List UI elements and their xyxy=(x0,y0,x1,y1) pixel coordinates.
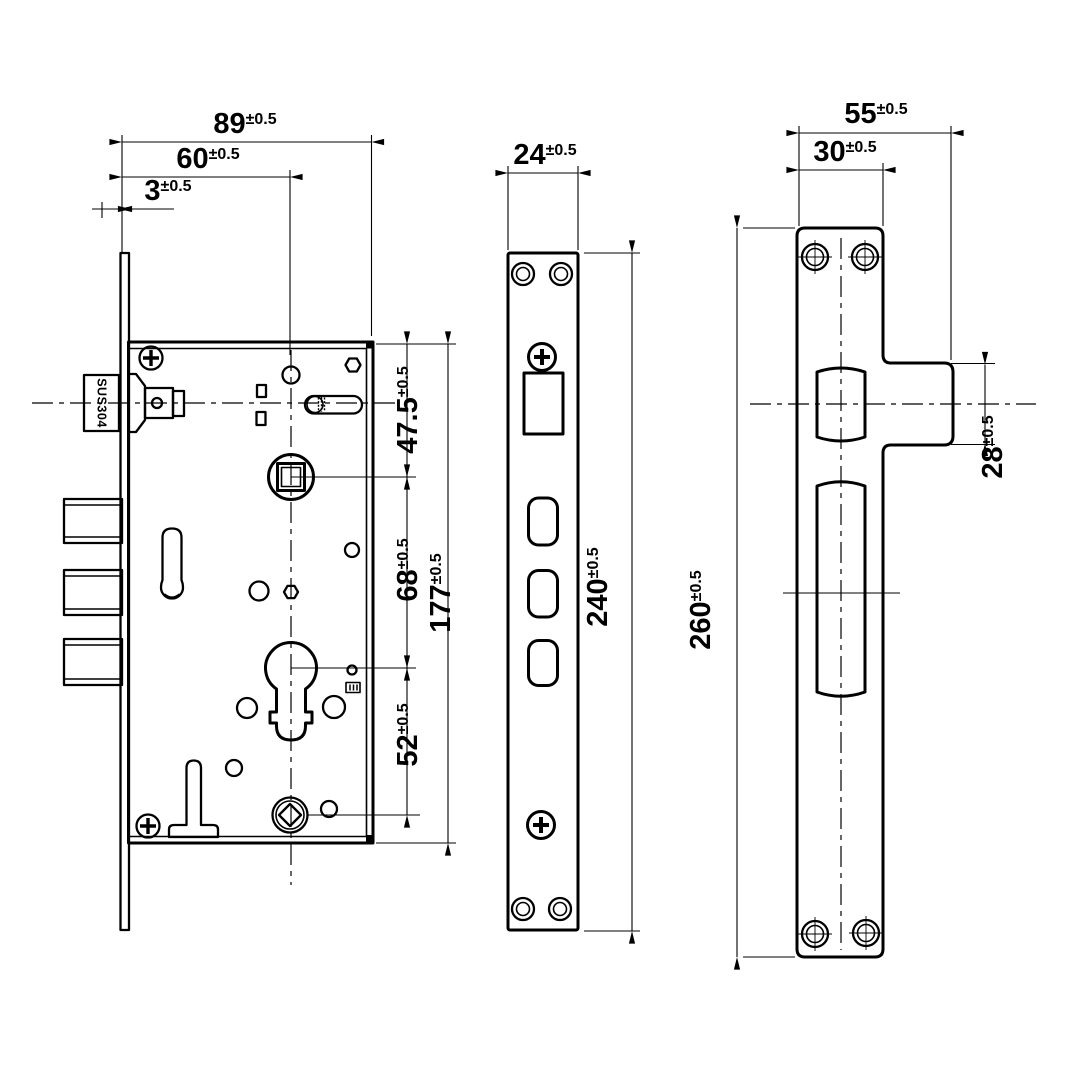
deadbolt-opening-3 xyxy=(529,641,558,686)
stop-slot xyxy=(305,396,362,414)
hole-inner xyxy=(554,903,567,916)
dim-3-label: 3±0.5 xyxy=(144,175,191,207)
hole-outer xyxy=(512,898,534,920)
dim-24-label: 24±0.5 xyxy=(513,139,576,171)
stop-slot-outline xyxy=(305,396,362,414)
lock-body-inner-line xyxy=(129,349,367,837)
dim-55-label: 55±0.5 xyxy=(844,98,907,130)
dim-52-label: 52±0.5 xyxy=(392,703,424,766)
deadbolt-3 xyxy=(64,639,122,685)
fixing-screw-top xyxy=(140,347,163,370)
cover-plate-view xyxy=(783,228,953,957)
latch-opening xyxy=(524,373,563,434)
square-hole-lower xyxy=(257,412,266,425)
faceplate-screw-top xyxy=(529,344,556,371)
deadbolt-opening-1 xyxy=(529,498,558,545)
round-hole-center xyxy=(250,582,269,601)
guide-pin-outline xyxy=(161,529,183,599)
dimension-labels: 89±0.5 60±0.5 3±0.5 47.5±0.5 68±0.5 52±0… xyxy=(95,98,1010,767)
hole-inner xyxy=(555,268,568,281)
crosshair-icon xyxy=(848,240,882,274)
small-hole-right xyxy=(345,543,359,557)
deadbolt-1 xyxy=(64,499,122,543)
hole-right-of-cylinder xyxy=(323,696,345,718)
stop-slot-knurl-circle xyxy=(307,397,323,413)
faceplate-front-view xyxy=(508,253,578,930)
diamond-socket xyxy=(279,804,301,826)
technical-drawing-page: 89±0.5 60±0.5 3±0.5 47.5±0.5 68±0.5 52±0… xyxy=(0,0,1080,1080)
phillips-cross-icon xyxy=(533,817,549,833)
hole-outer xyxy=(512,263,534,285)
deadbolt-1-lips xyxy=(64,505,122,537)
faceplate-top-holes xyxy=(512,263,572,285)
dim-28-label: 28±0.5 xyxy=(977,415,1009,478)
phillips-cross-icon xyxy=(534,349,550,365)
dim-68-label: 68±0.5 xyxy=(392,538,424,601)
fixing-screw-bottom xyxy=(137,815,160,838)
faceplate-screw-bottom xyxy=(528,812,555,839)
square-hole-upper xyxy=(257,385,266,397)
adjuster-outer-circle xyxy=(273,798,308,833)
deadbolt-3-lips xyxy=(64,645,122,679)
hole-lower-left xyxy=(226,760,242,776)
lock-case-side-view xyxy=(64,253,373,930)
dim-30-label: 30±0.5 xyxy=(813,136,876,168)
phillips-cross-icon xyxy=(143,350,159,366)
deadbolt-2-lips xyxy=(64,576,122,609)
hole-outer xyxy=(550,263,572,285)
phillips-cross-icon xyxy=(140,818,156,834)
dim-177-label: 177±0.5 xyxy=(425,553,457,633)
material-label: SUS304 xyxy=(95,378,109,428)
faceplate-bottom-holes xyxy=(512,898,571,920)
tiny-hole-right xyxy=(348,666,357,675)
hole-inner xyxy=(517,903,530,916)
deadbolt-2 xyxy=(64,570,122,615)
vent-grille xyxy=(346,683,360,693)
dim-240-label: 240±0.5 xyxy=(582,547,614,627)
dim-89-label: 89±0.5 xyxy=(213,108,276,140)
plate-screw-top-left xyxy=(798,240,832,274)
crosshair-icon xyxy=(798,917,832,951)
hole-inner xyxy=(517,268,530,281)
adjuster-diamond xyxy=(273,798,308,833)
corner-weld-dot-bottom xyxy=(366,835,373,842)
hex-hole-top-right xyxy=(346,359,361,372)
guide-pin-slot xyxy=(161,529,183,599)
hole-outer xyxy=(549,898,571,920)
crosshair-icon xyxy=(798,240,832,274)
crosshair-icon xyxy=(849,916,883,950)
deadbolt-opening-2 xyxy=(529,571,558,618)
deadbolt-3-body xyxy=(64,639,122,685)
dim-60-label: 60±0.5 xyxy=(176,143,239,175)
plate-screw-bottom-right xyxy=(849,916,883,950)
mortise-lock-drawing: 89±0.5 60±0.5 3±0.5 47.5±0.5 68±0.5 52±0… xyxy=(0,0,1080,1080)
lever-bracket xyxy=(169,761,218,838)
plate-screw-bottom-left xyxy=(798,917,832,951)
plate-screw-top-right xyxy=(848,240,882,274)
corner-weld-dot-top xyxy=(366,343,373,349)
dim-47-5-label: 47.5±0.5 xyxy=(392,366,424,454)
dim-260-label: 260±0.5 xyxy=(685,570,717,650)
grille-bars xyxy=(350,685,357,691)
hole-left-of-cylinder xyxy=(237,698,257,718)
